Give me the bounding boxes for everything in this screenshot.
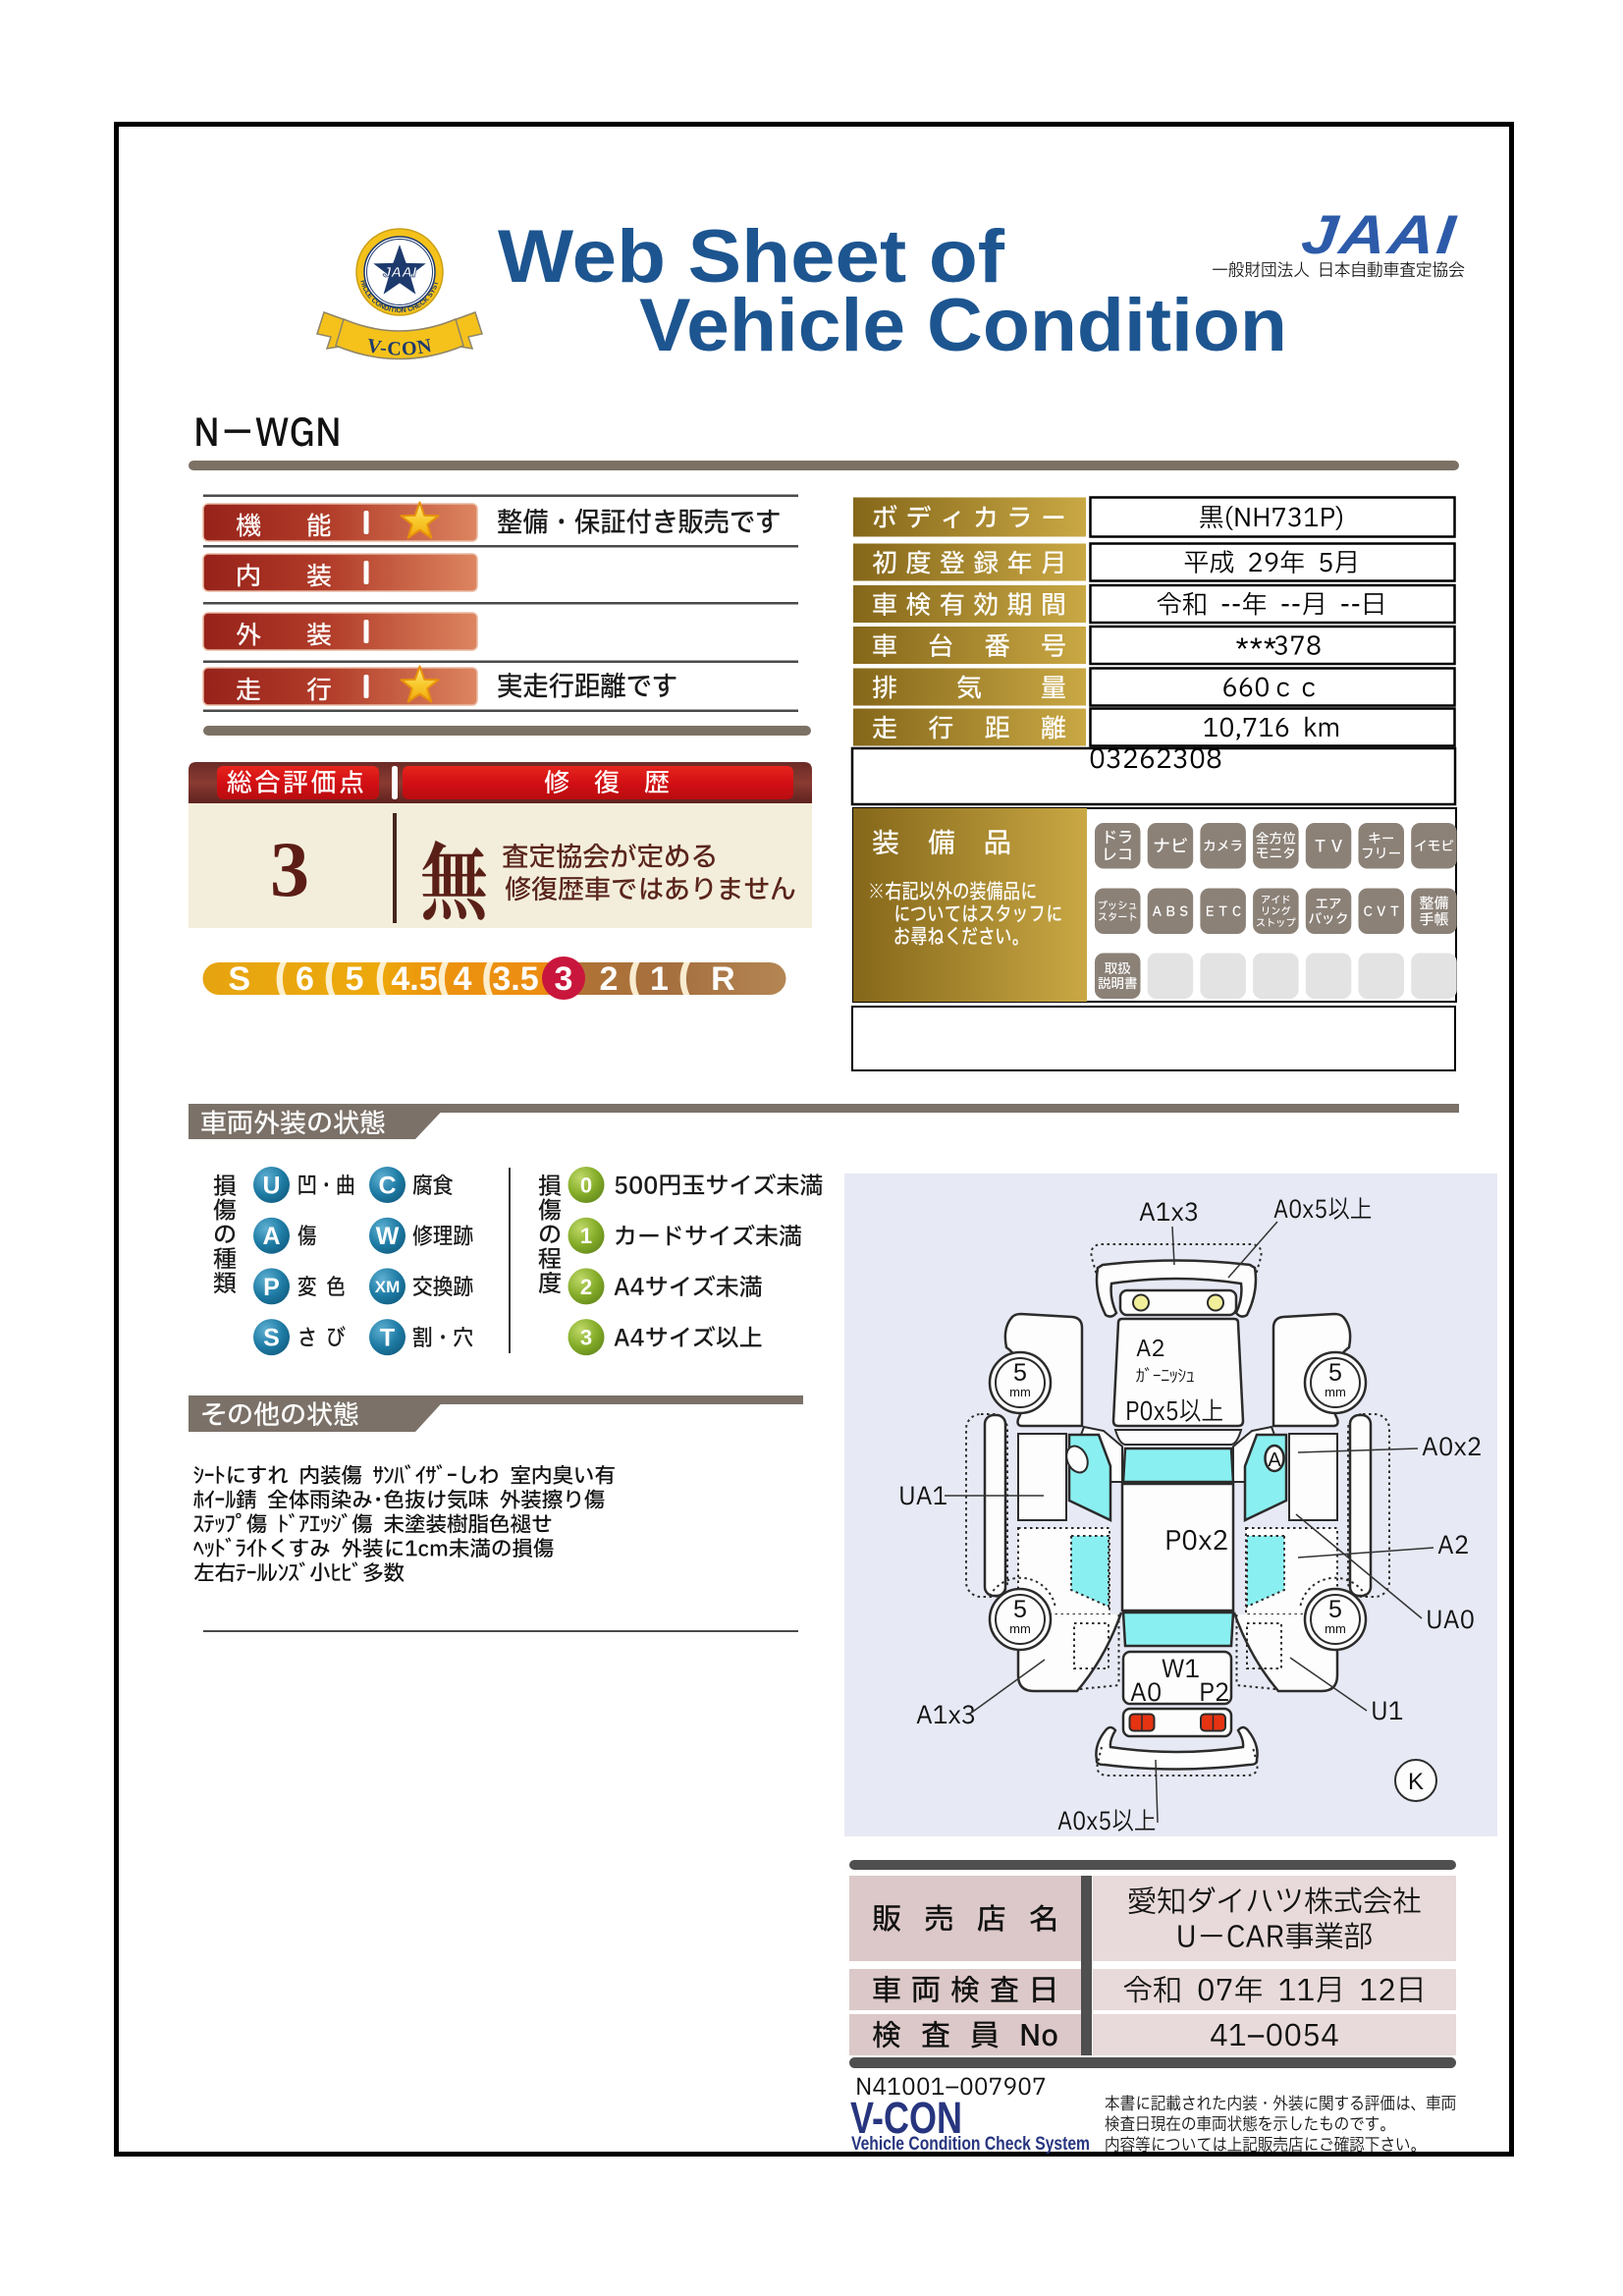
svg-text:3: 3	[580, 1326, 592, 1350]
svg-text:5: 5	[1328, 1596, 1342, 1623]
svg-text:mm: mm	[1009, 1621, 1031, 1636]
svg-text:V-CON: V-CON	[365, 335, 434, 360]
svg-text:1: 1	[650, 960, 669, 998]
svg-text:R: R	[711, 960, 735, 998]
svg-text:W: W	[376, 1223, 400, 1250]
svg-text:JAAI: JAAI	[383, 264, 417, 281]
svg-text:P: P	[263, 1274, 280, 1301]
svg-text:4.5: 4.5	[391, 960, 437, 998]
svg-text:3: 3	[555, 960, 573, 998]
svg-text:mm: mm	[1009, 1385, 1031, 1399]
svg-text:T: T	[380, 1325, 395, 1352]
svg-text:5: 5	[346, 960, 364, 998]
svg-text:5: 5	[1013, 1596, 1027, 1623]
svg-text:S: S	[263, 1325, 280, 1352]
svg-text:Vehicle Condition: Vehicle Condition	[639, 284, 1287, 367]
svg-text:Vehicle Condition Check System: Vehicle Condition Check System	[851, 2134, 1090, 2155]
svg-text:mm: mm	[1325, 1621, 1346, 1636]
svg-text:A: A	[262, 1223, 280, 1250]
svg-text:2: 2	[580, 1275, 592, 1299]
svg-text:6: 6	[296, 960, 314, 998]
svg-text:C: C	[378, 1173, 396, 1200]
svg-text:A: A	[1268, 1449, 1281, 1471]
svg-text:K: K	[1408, 1769, 1424, 1795]
svg-text:5: 5	[1328, 1359, 1342, 1387]
svg-text:JAAI: JAAI	[1299, 203, 1461, 265]
svg-text:1: 1	[580, 1224, 592, 1248]
svg-text:3.5: 3.5	[492, 960, 538, 998]
svg-text:5: 5	[1013, 1359, 1027, 1387]
svg-text:4: 4	[454, 960, 472, 998]
svg-text:2: 2	[600, 960, 619, 998]
svg-text:U: U	[262, 1173, 280, 1200]
svg-text:XM: XM	[375, 1278, 401, 1296]
svg-text:3: 3	[270, 827, 309, 913]
svg-text:mm: mm	[1325, 1385, 1346, 1399]
svg-text:0: 0	[580, 1174, 592, 1198]
svg-text:S: S	[228, 960, 250, 998]
